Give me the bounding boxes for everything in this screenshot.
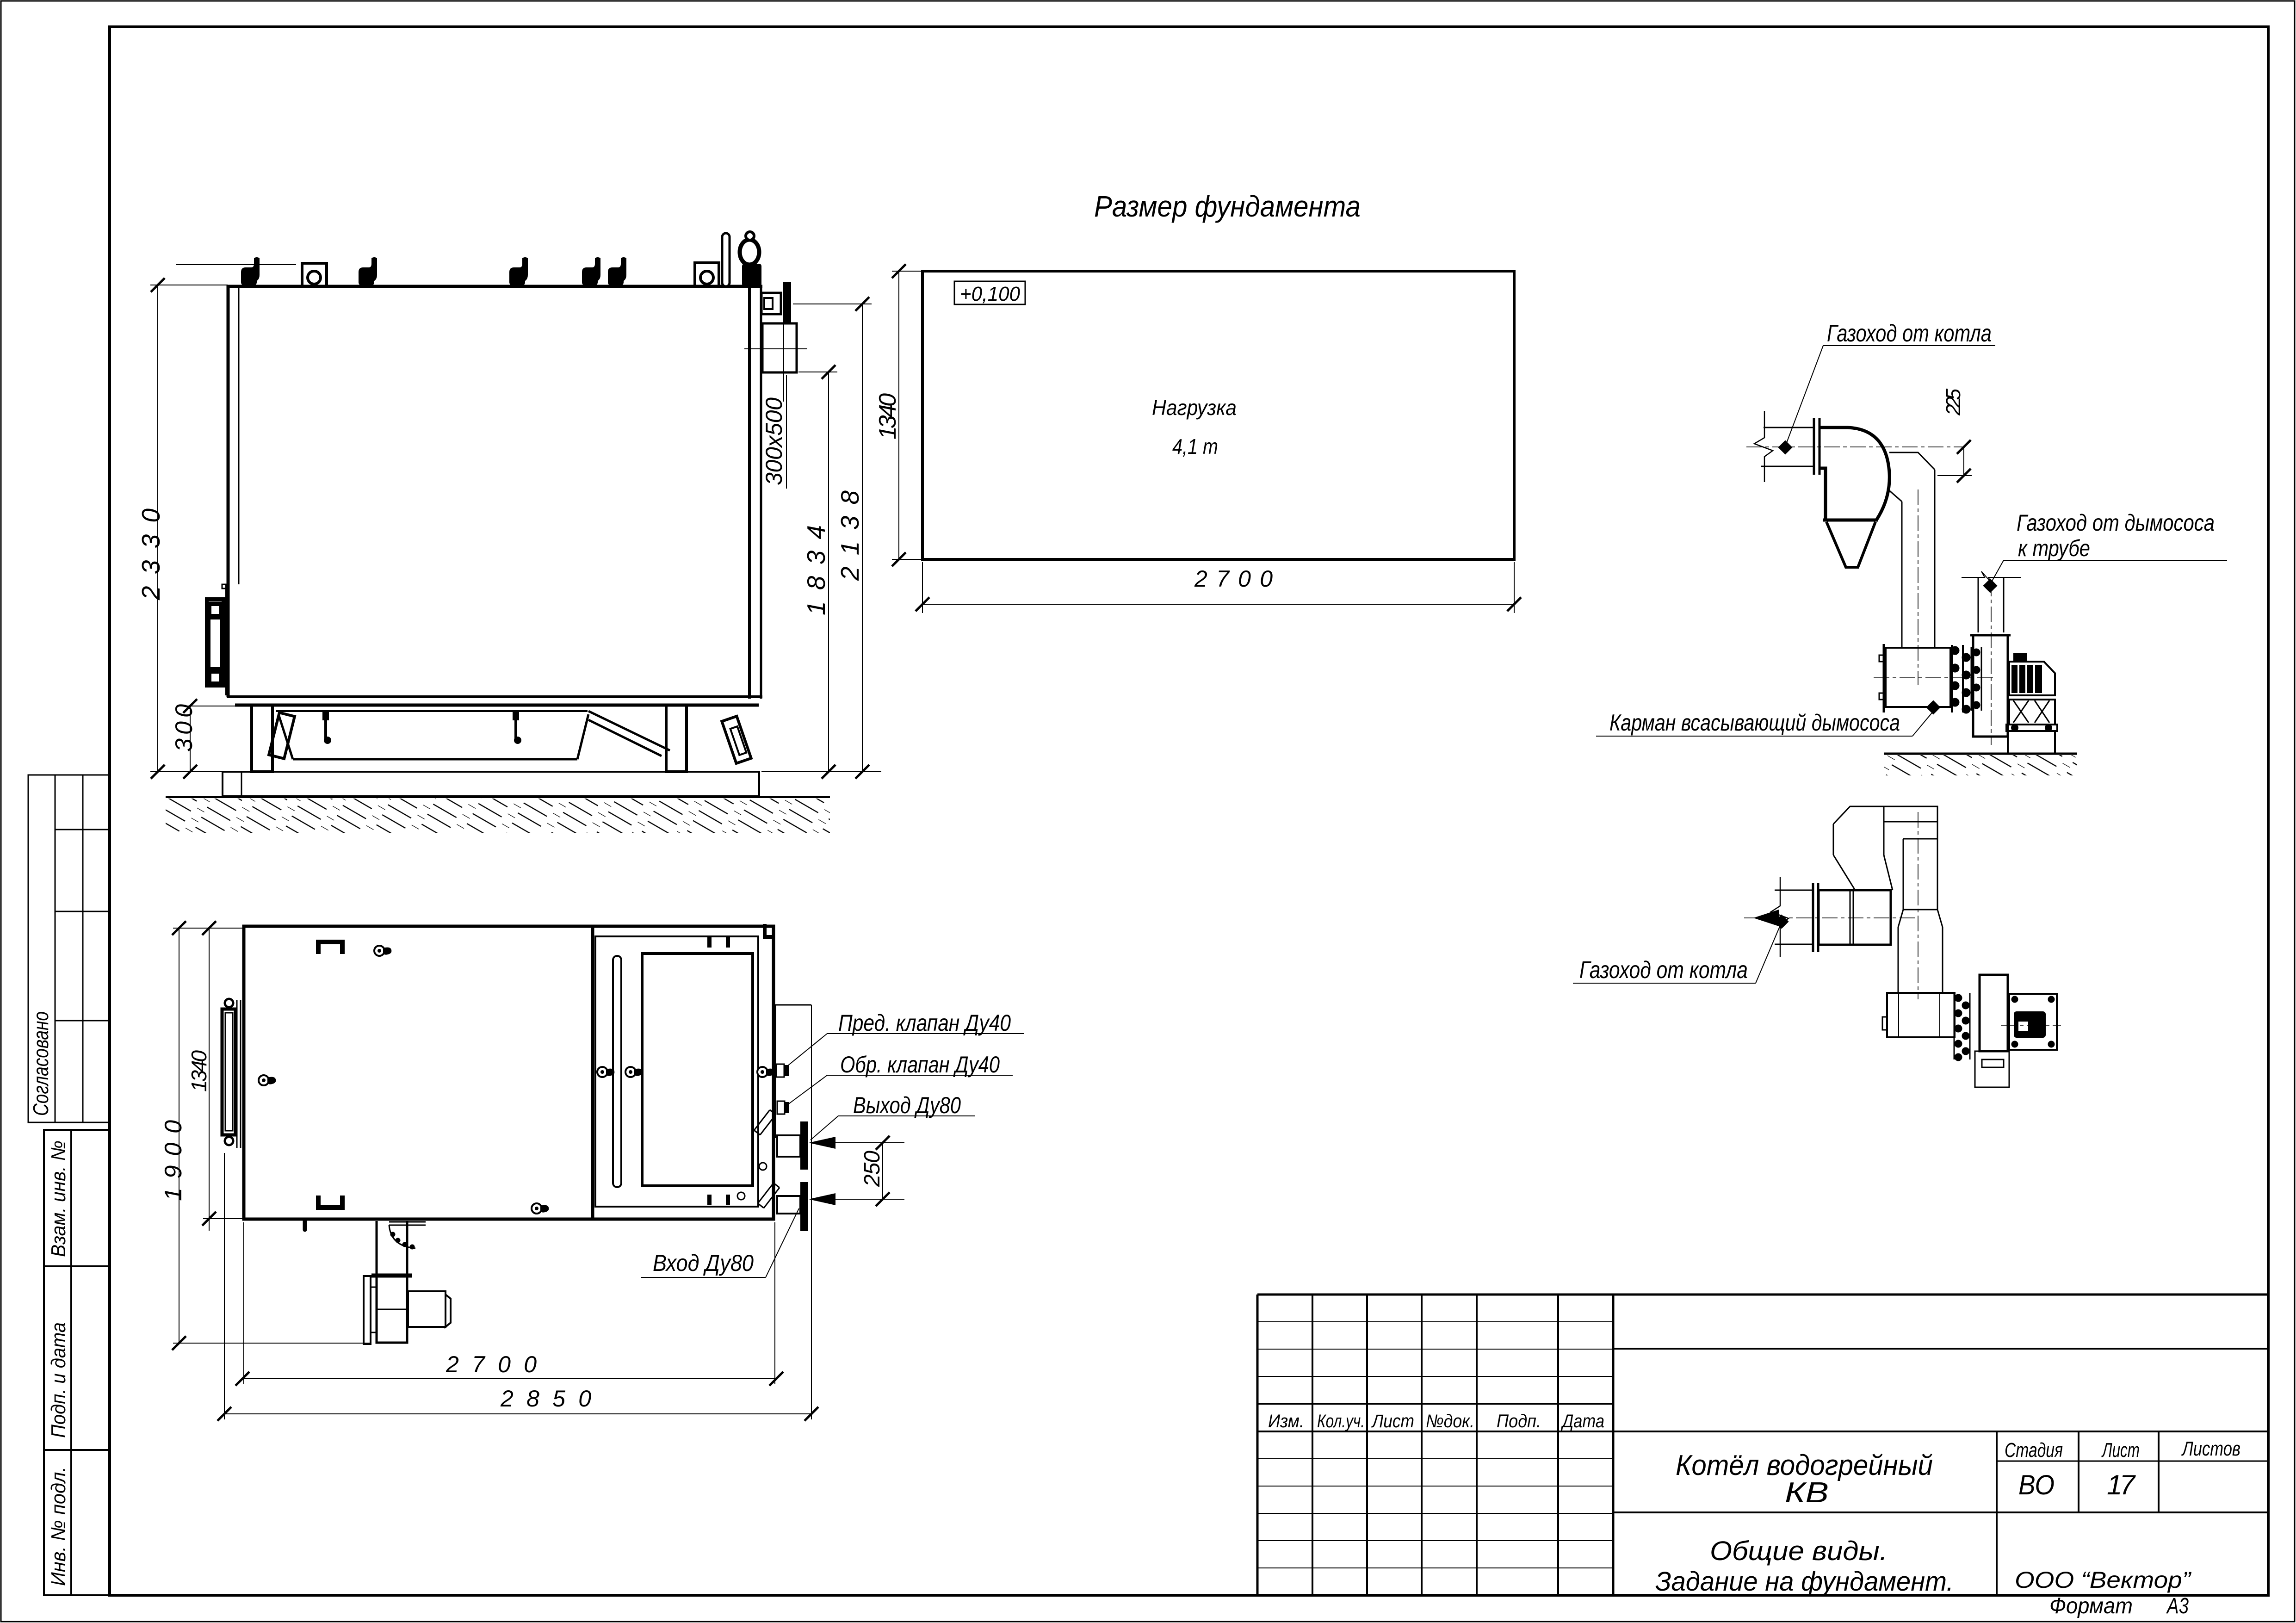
svg-text:Карман всасывающий дымососа: Карман всасывающий дымососа [1609,710,1900,736]
svg-text:2700: 2700 [446,1351,537,1377]
svg-text:Дата: Дата [1561,1411,1604,1431]
svg-text:Вход Ду80: Вход Ду80 [653,1250,754,1276]
svg-text:Листов: Листов [2181,1437,2240,1460]
svg-text:Подп.: Подп. [1497,1411,1541,1431]
svg-text:Лист: Лист [2101,1439,2140,1462]
svg-text:1900: 1900 [160,1120,187,1201]
svg-text:Изм.: Изм. [1268,1411,1304,1431]
svg-text:2138: 2138 [835,490,864,581]
svg-text:Обр. клапан Ду40: Обр. клапан Ду40 [840,1052,1000,1078]
svg-text:Газоход от котла: Газоход от котла [1579,957,1748,984]
svg-text:к трубе: к трубе [2018,535,2090,561]
svg-text:Газоход от котла: Газоход от котла [1827,320,1992,347]
svg-text:250: 250 [860,1151,885,1187]
svg-text:КВ: КВ [1785,1477,1829,1509]
svg-text:Стадия: Стадия [2005,1439,2063,1462]
svg-text:Размер фундамента: Размер фундамента [1094,190,1361,223]
svg-text:Формат: Формат [2049,1594,2133,1618]
svg-text:2850: 2850 [500,1386,591,1412]
svg-text:ВО: ВО [2018,1469,2055,1500]
svg-text:Газоход от дымососа: Газоход от дымососа [2017,510,2215,536]
svg-text:2700: 2700 [1194,566,1273,592]
svg-text:Подп. и дата: Подп. и дата [47,1322,70,1438]
svg-text:1340: 1340 [187,1050,211,1092]
svg-text:+0,100: +0,100 [960,283,1020,305]
svg-text:1834: 1834 [802,525,830,615]
svg-text:300: 300 [171,704,198,752]
svg-text:300х500: 300х500 [761,397,787,485]
svg-text:№док.: №док. [1426,1411,1474,1431]
svg-text:17: 17 [2107,1469,2136,1500]
svg-text:Инв. № подл.: Инв. № подл. [47,1467,70,1586]
svg-text:Выход Ду80: Выход Ду80 [853,1092,961,1118]
svg-text:2330: 2330 [136,508,165,601]
svg-text:Кол.уч.: Кол.уч. [1317,1411,1365,1431]
svg-text:Пред. клапан Ду40: Пред. клапан Ду40 [838,1010,1011,1036]
svg-text:А3: А3 [2166,1594,2189,1618]
svg-text:Общие виды.: Общие виды. [1710,1536,1888,1566]
svg-text:225: 225 [1942,388,1965,416]
svg-text:ООО “Вектор”: ООО “Вектор” [2015,1567,2192,1593]
svg-text:4,1 т: 4,1 т [1172,434,1218,458]
svg-text:Задание на фундамент.: Задание на фундамент. [1655,1567,1954,1597]
svg-text:Нагрузка: Нагрузка [1152,396,1237,420]
svg-text:Лист: Лист [1371,1411,1414,1431]
svg-text:1340: 1340 [874,393,901,440]
svg-text:Согласовано: Согласовано [29,1011,53,1116]
svg-text:Взам. инв. №: Взам. инв. № [47,1140,70,1257]
